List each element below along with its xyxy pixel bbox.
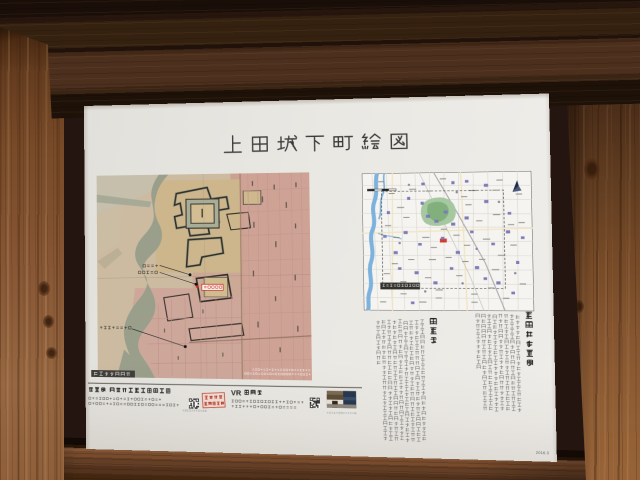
- svg-text:VR: VR: [231, 390, 241, 398]
